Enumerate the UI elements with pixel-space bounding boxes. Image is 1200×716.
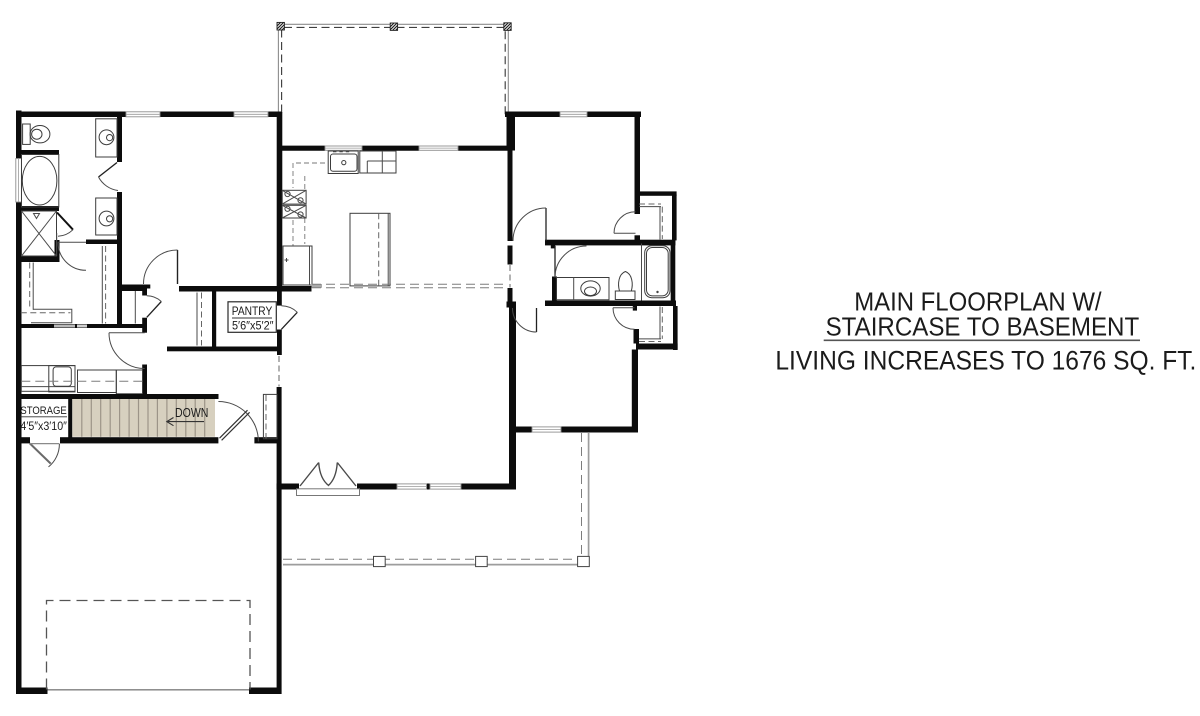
- svg-text:LIVING INCREASES TO 1676 SQ. F: LIVING INCREASES TO 1676 SQ. FT.: [775, 346, 1196, 376]
- svg-text:STAIRCASE TO BASEMENT: STAIRCASE TO BASEMENT: [826, 312, 1140, 342]
- svg-text:DOWN: DOWN: [175, 406, 208, 420]
- svg-text:4′5″x3′10″: 4′5″x3′10″: [20, 419, 67, 433]
- svg-text:STORAGE: STORAGE: [20, 405, 66, 417]
- svg-text:5′6″x5′2″: 5′6″x5′2″: [232, 321, 274, 333]
- svg-text:PANTRY: PANTRY: [232, 304, 272, 318]
